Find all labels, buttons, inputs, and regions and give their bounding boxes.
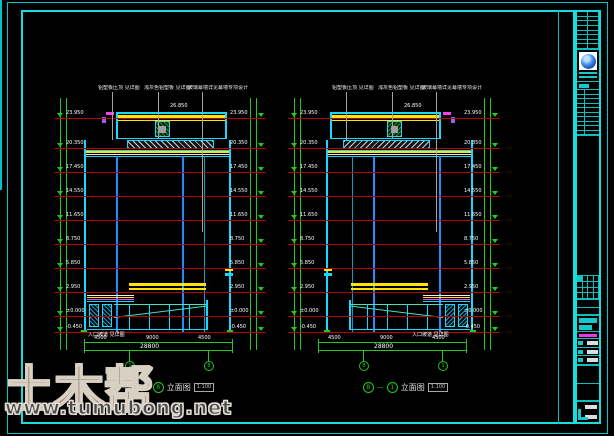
sheet-edge-line (0, 0, 2, 190)
elevation-marker-left (291, 113, 297, 117)
stamp-chip (579, 84, 589, 88)
titleblock-logo-section (577, 50, 599, 82)
elevation-value-left: 2.950 (300, 284, 314, 290)
elevation-marker-left (291, 215, 297, 219)
elevation-marker-right (492, 327, 498, 331)
material-callout: 浅灰色铝塑板 见详图 (144, 85, 191, 91)
material-callout: 玻璃幕墙详见幕墙专项设计 (422, 85, 482, 91)
corner-mark (578, 409, 588, 420)
elevation-marker-right (258, 167, 264, 171)
logo-caption-bar (579, 76, 597, 78)
dimension-value: 9000 (380, 335, 393, 341)
grid-cell (594, 293, 600, 299)
elevation-marker-right (258, 263, 264, 267)
elevation-marker-left (57, 143, 63, 147)
elevation-marker-right (492, 113, 498, 117)
elevation-marker-left (57, 113, 63, 117)
elevation-marker-right (258, 239, 264, 243)
elevation-value-left: 5.850 (66, 260, 80, 266)
elevation-value-right: ±0.000 (230, 308, 249, 314)
elevation-value-right: -0.450 (464, 324, 480, 330)
elevation-value-left: 5.850 (300, 260, 314, 266)
elevation-marker-left (291, 263, 297, 267)
elevation-marker-left (57, 311, 63, 315)
elevation-value-right: 2.950 (464, 284, 478, 290)
elevation-value-right: 23.950 (464, 110, 482, 116)
grid-line (484, 98, 485, 350)
field-label-bar (578, 350, 583, 354)
titleblock-row (577, 308, 599, 316)
titleblock-field-rows (577, 339, 599, 366)
level-line (288, 268, 500, 269)
elevation-marker-right (492, 167, 498, 171)
drawing-overlay: 23.95023.95020.35020.35017.45017.45014.5… (288, 82, 503, 402)
field-value-bar (587, 341, 598, 345)
elevation-marker-left (291, 191, 297, 195)
titleblock-empty-cell (577, 136, 599, 276)
company-name-bar (579, 325, 592, 330)
titleblock (575, 10, 601, 424)
cad-sheet: 23.95023.95020.35020.35017.45017.45014.5… (0, 0, 614, 436)
field-row (577, 339, 599, 348)
elevation-drawing-2: 23.95023.95020.35020.35017.45017.45014.5… (288, 82, 503, 402)
elevation-value-left: 23.950 (300, 110, 318, 116)
callout-leader (202, 92, 203, 232)
titleblock-project-row (577, 332, 599, 339)
elevation-value-right: ±0.000 (464, 308, 483, 314)
elevation-value-left: ±0.000 (300, 308, 319, 314)
elevation-marker-right (258, 191, 264, 195)
elevation-marker-left (57, 263, 63, 267)
elevation-value-left: ±0.000 (66, 308, 85, 314)
field-row (577, 348, 599, 357)
field-label-bar (578, 358, 583, 362)
dimension-tick (232, 339, 233, 353)
level-line (54, 220, 266, 221)
dimension-value: 4500 (198, 335, 211, 341)
caption-dash: — (377, 383, 384, 392)
info-row (577, 131, 599, 136)
elevation-value-left: 17.450 (66, 164, 84, 170)
elevation-value-right: 20.350 (230, 140, 248, 146)
axis-bubble: 8 (153, 382, 164, 393)
elevation-marker-right (258, 327, 264, 331)
titleblock-empty-rows (577, 366, 599, 402)
elevation-value-right: 17.450 (230, 164, 248, 170)
dimension-total: 28800 (374, 343, 393, 350)
elevation-value-left: 2.950 (66, 284, 80, 290)
elevation-value-left: 14.550 (300, 188, 318, 194)
titleblock-revision-table (577, 12, 599, 50)
entrance-label: 入口坡道 见详图 (88, 332, 125, 338)
elevation-value-left: 11.650 (300, 212, 318, 218)
elevation-marker-left (57, 215, 63, 219)
level-line (54, 148, 266, 149)
grid-line (490, 98, 491, 350)
level-line (54, 196, 266, 197)
elevation-marker-left (291, 239, 297, 243)
elevation-marker-right (258, 113, 264, 117)
elevation-marker-left (57, 191, 63, 195)
elevation-marker-left (57, 239, 63, 243)
material-callout: 铝塑板压顶 见详图 (332, 85, 374, 91)
elevation-value-right: 23.950 (230, 110, 248, 116)
level-line (54, 332, 266, 333)
elevation-marker-right (258, 311, 264, 315)
elevation-marker-right (492, 287, 498, 291)
drawing-caption: 8 — 1 立面图 1:100 (288, 382, 503, 393)
titleblock-info-table (577, 90, 599, 136)
institute-logo (579, 52, 597, 70)
titleblock-number-row (577, 402, 599, 422)
elevation-marker-right (492, 143, 498, 147)
elevation-value-right: 5.850 (230, 260, 244, 266)
elevation-value-left: 20.350 (300, 140, 318, 146)
project-name-bar (579, 334, 597, 337)
elevation-value-right: 5.850 (464, 260, 478, 266)
elevation-marker-left (291, 143, 297, 147)
axis-bubble: 8 (363, 382, 374, 393)
dimension-total: 28800 (140, 343, 159, 350)
drawing-scale: 1:100 (428, 383, 448, 392)
elevation-value-left: -0.450 (66, 324, 82, 330)
titleblock-stamp-row (577, 82, 599, 90)
axis-bubble: 8 (204, 361, 214, 371)
empty-row (577, 366, 599, 384)
elevation-value-right: 11.650 (230, 212, 248, 218)
field-label-bar (578, 341, 583, 345)
level-line (288, 148, 500, 149)
roof-elevation-value: 26.850 (170, 103, 188, 109)
elevation-value-left: 8.750 (300, 236, 314, 242)
level-line (288, 196, 500, 197)
titleblock-row (577, 300, 599, 308)
elevation-value-right: 20.350 (464, 140, 482, 146)
titleblock-rows (577, 300, 599, 316)
level-line (288, 244, 500, 245)
dimension-value: 4500 (328, 335, 341, 341)
elevation-value-left: 8.750 (66, 236, 80, 242)
elevation-value-right: 14.550 (230, 188, 248, 194)
elevation-value-right: 11.650 (464, 212, 482, 218)
elevation-marker-right (492, 263, 498, 267)
elevation-marker-right (492, 311, 498, 315)
elevation-value-left: 11.650 (66, 212, 84, 218)
empty-row (577, 384, 599, 402)
level-line (288, 118, 500, 119)
revision-cell (577, 44, 588, 49)
field-row (577, 356, 599, 365)
elevation-marker-right (492, 215, 498, 219)
elevation-marker-left (57, 167, 63, 171)
level-line (54, 292, 266, 293)
level-line (288, 332, 500, 333)
axis-leader (363, 350, 364, 361)
dimension-tick (466, 339, 467, 353)
axis-bubble: 1 (387, 382, 398, 393)
elevation-marker-left (291, 311, 297, 315)
dimension-tick (318, 339, 319, 353)
drawing-title: 立面图 (401, 383, 425, 393)
axis-leader (442, 350, 443, 361)
grid-line (256, 98, 257, 350)
logo-caption-bar (579, 72, 597, 74)
drawing-scale: 1:100 (194, 383, 214, 392)
callout-leader (392, 92, 393, 138)
callout-leader (112, 92, 113, 140)
level-line (288, 316, 500, 317)
elevation-marker-right (258, 287, 264, 291)
dimension-value: 9000 (146, 335, 159, 341)
axis-bubble: 1 (438, 361, 448, 371)
level-line (288, 172, 500, 173)
callout-leader (346, 92, 347, 140)
elevation-marker-left (57, 287, 63, 291)
watermark-url: www.tumubong.net (5, 397, 232, 419)
elevation-value-left: 14.550 (66, 188, 84, 194)
callout-leader (158, 92, 159, 138)
company-name-bar (579, 318, 597, 323)
elevation-value-right: -0.450 (230, 324, 246, 330)
level-line (54, 268, 266, 269)
axis-leader (208, 350, 209, 361)
titleblock-grid-table (577, 276, 599, 300)
level-line (288, 220, 500, 221)
elevation-value-right: 14.550 (464, 188, 482, 194)
dimension-line (318, 350, 466, 351)
titleblock-company-block (577, 316, 599, 332)
level-line (288, 292, 500, 293)
elevation-marker-left (291, 327, 297, 331)
elevation-value-left: -0.450 (300, 324, 316, 330)
revision-cell (588, 44, 599, 49)
institute-seal-icon (581, 54, 596, 69)
elevation-value-left: 20.350 (66, 140, 84, 146)
elevation-value-left: 23.950 (66, 110, 84, 116)
elevation-marker-right (258, 215, 264, 219)
level-line (54, 244, 266, 245)
callout-leader (436, 92, 437, 232)
level-line (54, 118, 266, 119)
elevation-marker-left (57, 327, 63, 331)
field-value-bar (587, 358, 598, 362)
entrance-label: 入口坡道 见详图 (412, 332, 449, 338)
elevation-marker-right (492, 239, 498, 243)
elevation-value-right: 8.750 (230, 236, 244, 242)
elevation-marker-right (258, 143, 264, 147)
elevation-marker-right (492, 191, 498, 195)
level-line (54, 316, 266, 317)
material-callout: 玻璃幕墙详见幕墙专项设计 (188, 85, 248, 91)
material-callout: 浅灰色铝塑板 见详图 (378, 85, 425, 91)
axis-bubble: 8 (359, 361, 369, 371)
elevation-value-right: 17.450 (464, 164, 482, 170)
elevation-marker-left (291, 167, 297, 171)
field-value-bar (587, 350, 598, 354)
frame-divider (558, 10, 559, 424)
elevation-marker-left (291, 287, 297, 291)
level-line (54, 172, 266, 173)
elevation-value-left: 17.450 (300, 164, 318, 170)
elevation-value-right: 2.950 (230, 284, 244, 290)
material-callout: 铝塑板压顶 见详图 (98, 85, 140, 91)
grid-line (250, 98, 251, 350)
elevation-value-right: 8.750 (464, 236, 478, 242)
roof-elevation-value: 26.850 (404, 103, 422, 109)
drawing-title: 立面图 (167, 383, 191, 393)
